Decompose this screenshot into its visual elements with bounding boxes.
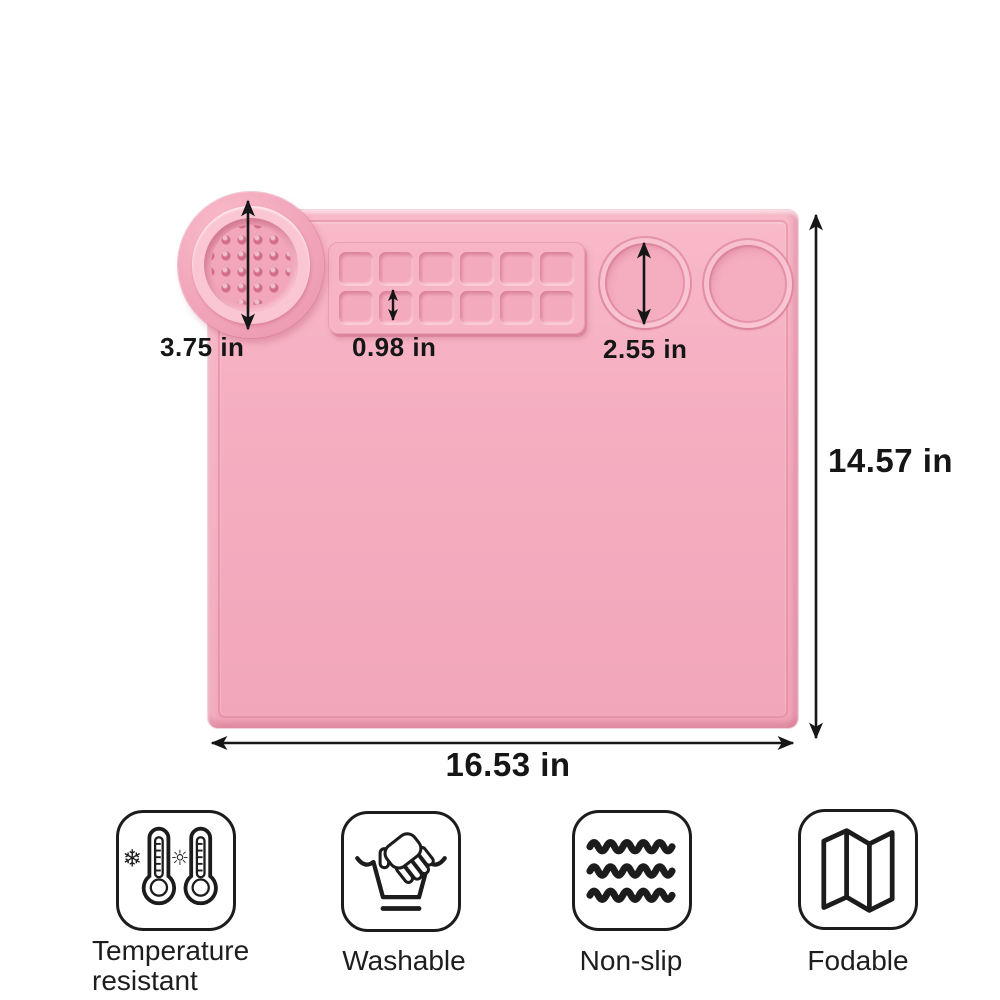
feature-washable xyxy=(341,811,461,932)
cup-diameter-label: 3.75 in xyxy=(160,332,244,363)
palette-well xyxy=(339,252,373,285)
mat-width-label: 16.53 in xyxy=(445,746,570,784)
palette-well xyxy=(540,291,574,324)
palette-well xyxy=(500,252,534,285)
feature-label-non-slip: Non-slip xyxy=(580,946,683,976)
feature-non-slip xyxy=(572,810,692,931)
folded-map-icon xyxy=(801,812,915,929)
thermometer-right xyxy=(186,829,216,904)
washable-icon xyxy=(344,814,458,929)
snowflake-icon: ❄ xyxy=(122,845,142,873)
palette-well xyxy=(379,291,413,324)
feature-temperature-resistant: ❄ ☼ xyxy=(116,810,236,931)
feature-label-washable: Washable xyxy=(342,946,465,976)
well-diameter-label: 2.55 in xyxy=(603,334,687,365)
water-cup-well-2 xyxy=(704,240,792,328)
water-cup-well-1 xyxy=(600,238,690,328)
brush-cleaning-cup xyxy=(178,192,324,338)
palette-well xyxy=(419,252,453,285)
brush-scrub-bumps xyxy=(211,225,291,305)
palette-cells xyxy=(339,252,574,324)
sun-icon: ☼ xyxy=(170,846,189,870)
palette-well xyxy=(460,252,494,285)
feature-label-fodable: Fodable xyxy=(807,946,908,976)
cup-interior xyxy=(204,218,298,312)
palette-well xyxy=(339,291,373,324)
palette-square-label: 0.98 in xyxy=(352,332,436,363)
palette-well xyxy=(500,291,534,324)
feature-label-temperature-resistant: Temperature resistant xyxy=(92,936,249,996)
mat-height-label: 14.57 in xyxy=(828,442,953,480)
palette-well xyxy=(460,291,494,324)
paint-palette-grid xyxy=(328,242,585,334)
palette-well xyxy=(379,252,413,285)
palette-well xyxy=(540,252,574,285)
wavy-lines-icon xyxy=(575,813,687,929)
product-diagram: 3.75 in 0.98 in 2.55 in 14.57 in 16.53 i… xyxy=(0,0,1000,1000)
palette-well xyxy=(419,291,453,324)
thermometer-icon: ❄ ☼ xyxy=(119,813,233,928)
feature-fodable xyxy=(798,809,918,930)
